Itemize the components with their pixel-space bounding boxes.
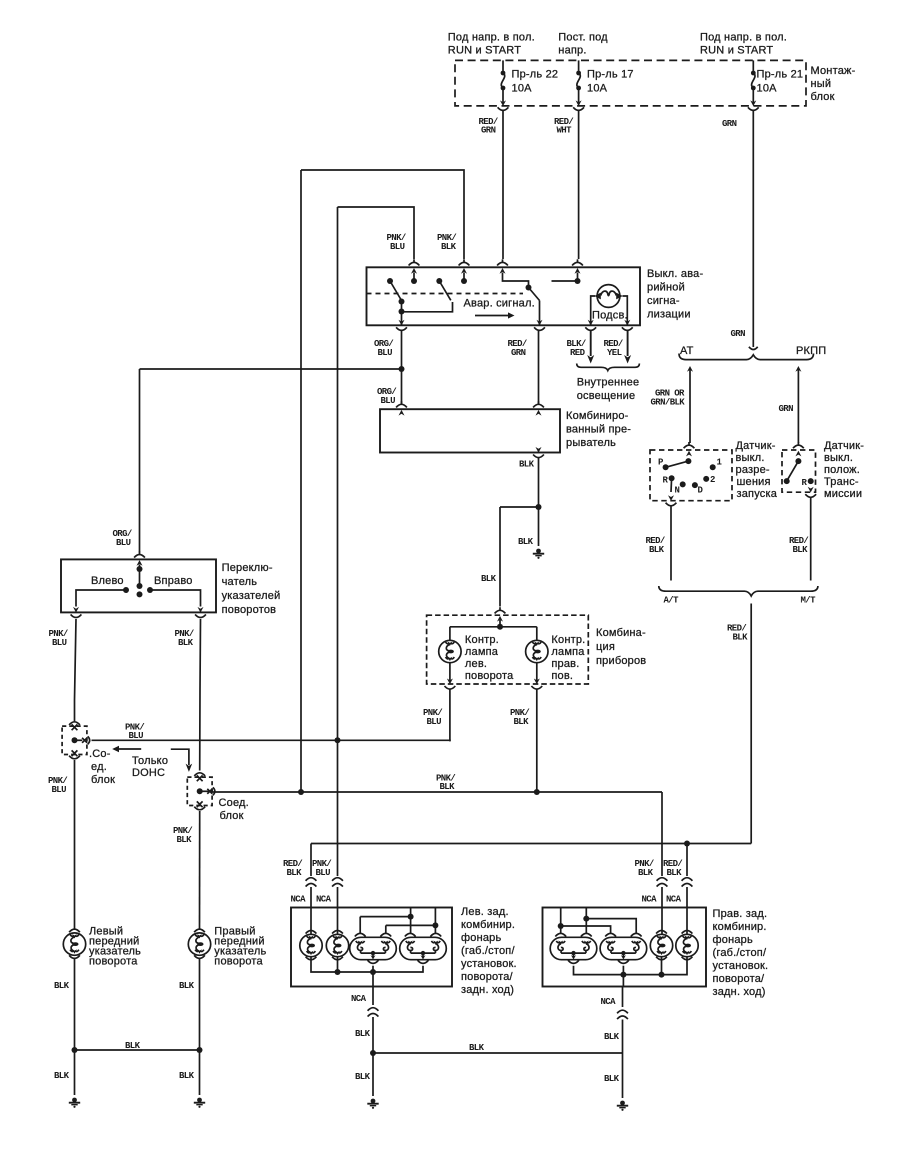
svg-text:рийной: рийной xyxy=(647,282,685,294)
svg-text:BLK: BLK xyxy=(179,1071,195,1081)
svg-text:Подсв.: Подсв. xyxy=(592,310,628,322)
svg-text:Только: Только xyxy=(132,755,168,767)
svg-text:BLK: BLK xyxy=(54,1071,70,1081)
svg-text:Под напр. в пол.: Под напр. в пол. xyxy=(700,32,787,44)
svg-text:RUN и START: RUN и START xyxy=(700,45,773,57)
svg-text:выкл.: выкл. xyxy=(824,452,853,464)
svg-text:NCA: NCA xyxy=(642,895,658,905)
svg-text:Комбина-: Комбина- xyxy=(596,627,646,639)
svg-text:BLK: BLK xyxy=(514,717,530,727)
svg-text:поворота/: поворота/ xyxy=(461,971,514,983)
svg-text:GRN: GRN xyxy=(779,404,794,414)
svg-text:миссии: миссии xyxy=(824,488,862,500)
svg-text:Переклю-: Переклю- xyxy=(222,562,273,574)
svg-text:поворота/: поворота/ xyxy=(713,973,766,985)
svg-text:Пр-ль 17: Пр-ль 17 xyxy=(587,69,634,81)
svg-text:Датчик-: Датчик- xyxy=(824,440,864,452)
svg-text:установок.: установок. xyxy=(713,960,769,972)
svg-text:Соед.: Соед. xyxy=(219,797,249,809)
svg-text:поворотов: поворотов xyxy=(222,604,277,616)
svg-text:BLK: BLK xyxy=(733,633,749,643)
svg-text:Влево: Влево xyxy=(91,575,124,587)
svg-text:BLK: BLK xyxy=(441,242,457,252)
svg-text:DOHC: DOHC xyxy=(132,767,165,779)
svg-text:Контр.: Контр. xyxy=(551,634,585,646)
svg-text:BLU: BLU xyxy=(129,731,144,741)
svg-text:BLU: BLU xyxy=(427,717,442,727)
svg-text:10А: 10А xyxy=(512,83,533,95)
svg-text:BLK: BLK xyxy=(649,545,665,555)
svg-text:A/T: A/T xyxy=(664,596,680,606)
svg-text:GRN: GRN xyxy=(731,329,746,339)
svg-text:лампа: лампа xyxy=(465,646,499,658)
svg-text:BLK: BLK xyxy=(604,1032,620,1042)
svg-text:10А: 10А xyxy=(587,83,608,95)
svg-text:Пр-ль 22: Пр-ль 22 xyxy=(512,69,559,81)
svg-text:RED: RED xyxy=(570,348,586,358)
svg-text:ция: ция xyxy=(596,641,615,653)
svg-text:BLK: BLK xyxy=(667,868,683,878)
svg-text:10А: 10А xyxy=(757,83,778,95)
svg-text:NCA: NCA xyxy=(291,895,307,905)
svg-text:.Со-: .Со- xyxy=(89,748,111,760)
svg-text:BLK: BLK xyxy=(125,1041,141,1051)
svg-text:BLK: BLK xyxy=(179,981,195,991)
svg-text:BLK: BLK xyxy=(355,1029,371,1039)
svg-text:NCA: NCA xyxy=(601,997,617,1007)
svg-text:WHT: WHT xyxy=(557,126,573,136)
svg-text:Датчик-: Датчик- xyxy=(736,440,776,452)
svg-text:полож.: полож. xyxy=(824,464,860,476)
svg-text:лампа: лампа xyxy=(551,646,585,658)
svg-text:ед.: ед. xyxy=(91,761,107,773)
svg-text:Лев. зад.: Лев. зад. xyxy=(461,906,509,918)
svg-text:BLU: BLU xyxy=(316,868,331,878)
svg-text:BLK: BLK xyxy=(604,1074,620,1084)
svg-text:YEL: YEL xyxy=(607,348,622,358)
svg-text:комбинир.: комбинир. xyxy=(713,921,767,933)
svg-text:M/T: M/T xyxy=(801,596,817,606)
svg-text:указателей: указателей xyxy=(222,590,281,602)
svg-text:рыватель: рыватель xyxy=(566,437,616,449)
svg-text:чатель: чатель xyxy=(222,576,258,588)
svg-text:поворота: поворота xyxy=(89,956,138,968)
svg-text:2: 2 xyxy=(710,475,715,485)
svg-text:Под напр. в пол.: Под напр. в пол. xyxy=(448,32,535,44)
svg-text:BLU: BLU xyxy=(381,396,396,406)
svg-text:лизации: лизации xyxy=(647,309,691,321)
svg-text:Авар. сигнал.: Авар. сигнал. xyxy=(464,298,535,310)
svg-text:АТ: АТ xyxy=(680,345,694,357)
svg-text:пов.: пов. xyxy=(551,670,573,682)
svg-text:GRN: GRN xyxy=(511,348,526,358)
svg-text:GRN/BLK: GRN/BLK xyxy=(651,398,686,408)
svg-text:Пр-ль 21: Пр-ль 21 xyxy=(757,69,804,81)
svg-text:поворота: поворота xyxy=(465,670,514,682)
svg-text:NCA: NCA xyxy=(666,895,682,905)
svg-text:NCA: NCA xyxy=(316,895,332,905)
svg-text:RUN и START: RUN и START xyxy=(448,45,521,57)
svg-text:BLK: BLK xyxy=(519,460,535,470)
svg-text:шения: шения xyxy=(737,476,771,488)
svg-text:РКПП: РКПП xyxy=(796,345,826,357)
svg-text:Выкл. ава-: Выкл. ава- xyxy=(647,268,703,280)
svg-text:Прав. зад.: Прав. зад. xyxy=(713,908,768,920)
svg-text:GRN: GRN xyxy=(722,119,737,129)
svg-text:запуска: запуска xyxy=(737,488,778,500)
svg-text:BLK: BLK xyxy=(287,868,303,878)
svg-text:задн. ход): задн. ход) xyxy=(713,986,766,998)
svg-text:установок.: установок. xyxy=(461,958,517,970)
svg-text:GRN: GRN xyxy=(481,126,496,136)
svg-text:блок: блок xyxy=(91,774,115,786)
svg-text:выкл.: выкл. xyxy=(736,452,765,464)
svg-text:ванный пре-: ванный пре- xyxy=(566,424,631,436)
svg-text:(габ./стоп/: (габ./стоп/ xyxy=(461,945,515,957)
svg-text:прав.: прав. xyxy=(551,658,579,670)
svg-text:BLU: BLU xyxy=(52,785,67,795)
svg-text:сигна-: сигна- xyxy=(647,295,680,307)
svg-text:Пост. под: Пост. под xyxy=(558,32,608,44)
svg-text:фонарь: фонарь xyxy=(461,932,501,944)
svg-text:BLK: BLK xyxy=(638,868,654,878)
svg-text:Комбиниро-: Комбиниро- xyxy=(566,410,629,422)
svg-text:BLU: BLU xyxy=(52,638,67,648)
svg-text:BLK: BLK xyxy=(177,835,193,845)
svg-text:освещение: освещение xyxy=(577,390,636,402)
svg-text:Контр.: Контр. xyxy=(465,634,499,646)
svg-text:Вправо: Вправо xyxy=(154,575,193,587)
svg-text:NCA: NCA xyxy=(351,994,367,1004)
svg-text:BLU: BLU xyxy=(390,242,405,252)
svg-text:разре-: разре- xyxy=(736,464,770,476)
svg-text:лев.: лев. xyxy=(465,658,487,670)
svg-text:приборов: приборов xyxy=(596,655,646,667)
svg-text:комбинир.: комбинир. xyxy=(461,919,515,931)
svg-text:N: N xyxy=(675,486,680,496)
svg-text:BLK: BLK xyxy=(518,537,534,547)
svg-text:BLU: BLU xyxy=(116,538,131,548)
svg-text:BLK: BLK xyxy=(469,1043,485,1053)
svg-text:BLK: BLK xyxy=(178,638,194,648)
svg-text:BLK: BLK xyxy=(355,1072,371,1082)
svg-text:Монтаж-: Монтаж- xyxy=(811,65,856,77)
svg-text:(габ./стоп/: (габ./стоп/ xyxy=(713,947,767,959)
svg-text:BLK: BLK xyxy=(481,574,497,584)
svg-text:фонарь: фонарь xyxy=(713,934,753,946)
svg-text:BLU: BLU xyxy=(378,348,393,358)
svg-text:напр.: напр. xyxy=(558,45,586,57)
svg-text:поворота: поворота xyxy=(214,956,263,968)
svg-text:BLK: BLK xyxy=(54,981,70,991)
svg-text:Внутреннее: Внутреннее xyxy=(577,377,640,389)
svg-text:BLK: BLK xyxy=(440,782,456,792)
svg-text:ный: ный xyxy=(811,78,832,90)
svg-text:блок: блок xyxy=(220,810,244,822)
svg-text:BLK: BLK xyxy=(793,545,809,555)
svg-text:блок: блок xyxy=(811,91,835,103)
svg-text:Транс-: Транс- xyxy=(824,476,859,488)
svg-text:задн. ход): задн. ход) xyxy=(461,984,514,996)
